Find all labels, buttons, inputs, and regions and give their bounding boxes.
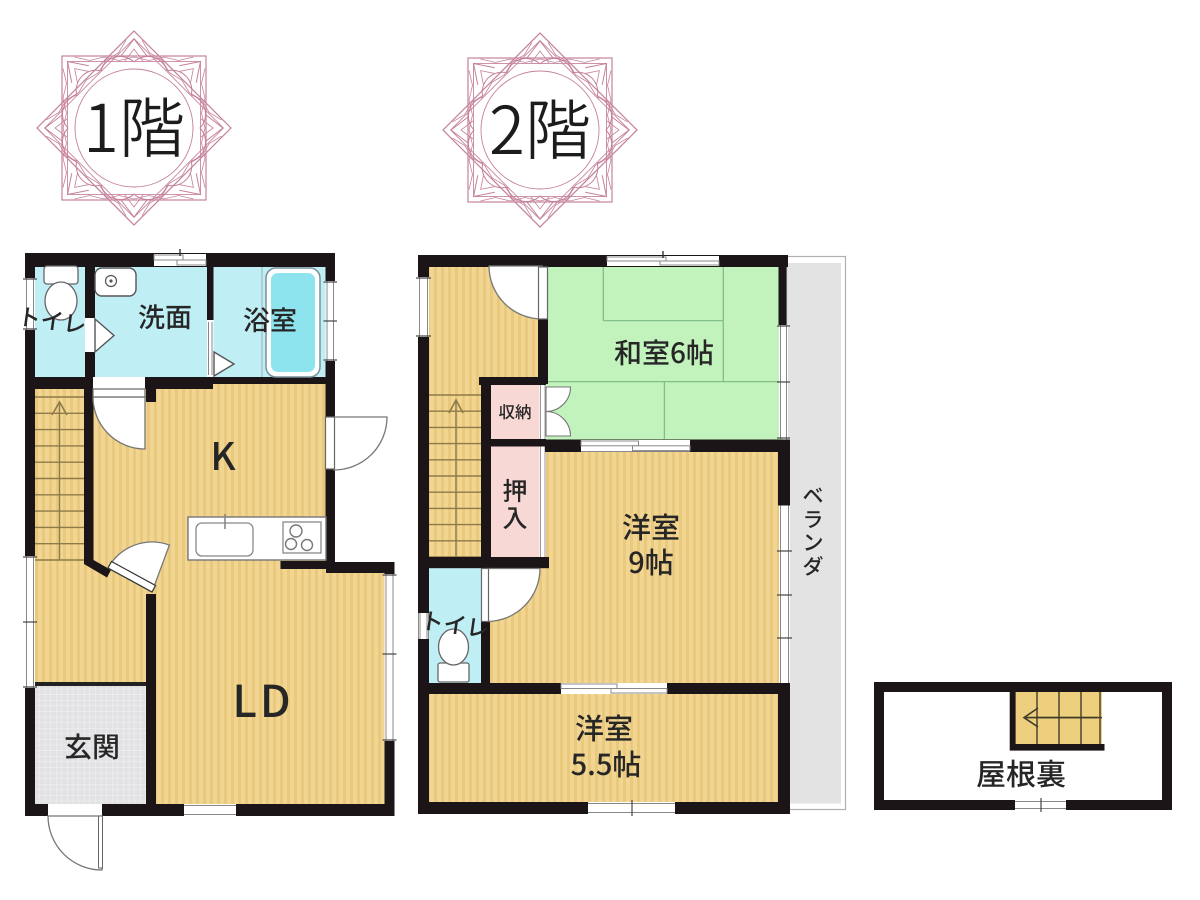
svg-text:5.5帖: 5.5帖	[571, 742, 642, 784]
svg-text:洗面: 洗面	[138, 296, 192, 335]
svg-text:浴室: 浴室	[243, 299, 297, 338]
svg-text:入: 入	[502, 499, 527, 535]
svg-text:玄関: 玄関	[64, 726, 120, 766]
svg-text:屋根裏: 屋根裏	[976, 750, 1066, 794]
svg-text:LD: LD	[232, 666, 293, 730]
svg-text:2階: 2階	[489, 78, 591, 174]
svg-text:和室6帖: 和室6帖	[614, 332, 714, 372]
svg-text:K: K	[210, 426, 236, 481]
svg-text:ダ: ダ	[803, 551, 824, 581]
svg-text:1階: 1階	[83, 76, 185, 172]
svg-text:9帖: 9帖	[628, 540, 674, 582]
svg-text:収納: 収納	[499, 399, 532, 423]
